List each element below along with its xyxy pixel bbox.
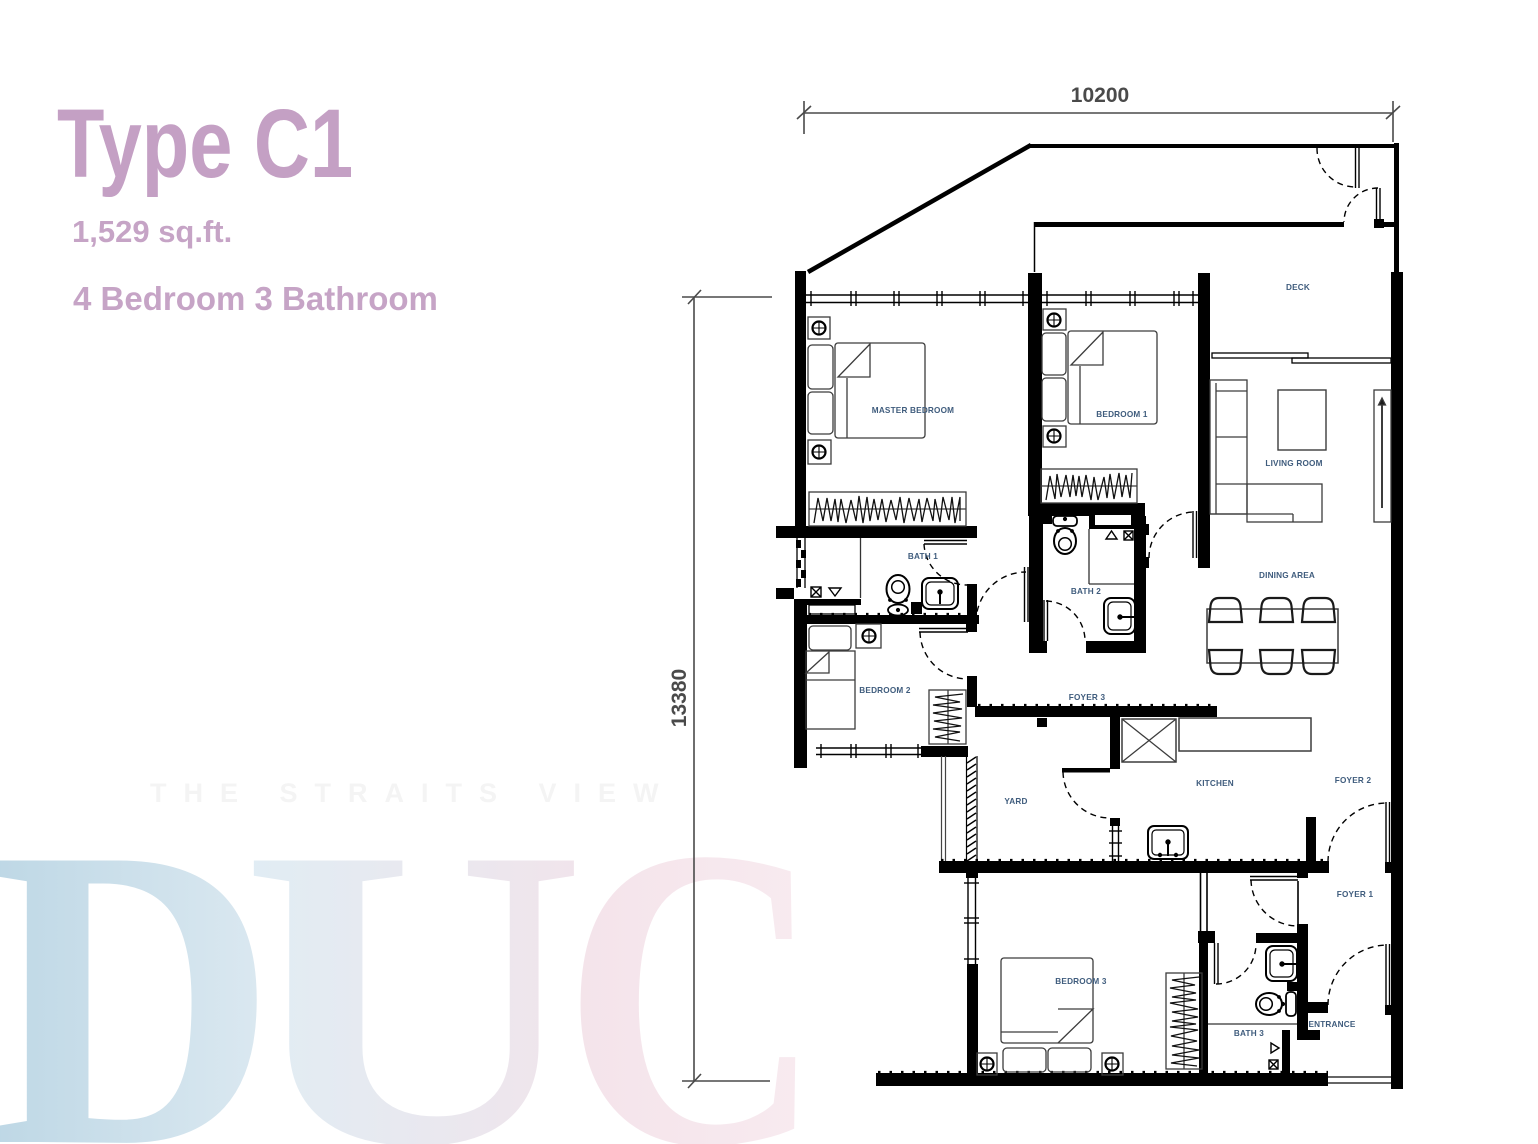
- svg-text:FOYER 1: FOYER 1: [1337, 890, 1374, 899]
- svg-text:BEDROOM 2: BEDROOM 2: [859, 686, 911, 695]
- svg-text:BATH 2: BATH 2: [1071, 587, 1101, 596]
- svg-text:FOYER 2: FOYER 2: [1335, 776, 1372, 785]
- svg-text:KITCHEN: KITCHEN: [1196, 779, 1234, 788]
- svg-text:BEDROOM 3: BEDROOM 3: [1055, 977, 1107, 986]
- svg-text:BEDROOM 1: BEDROOM 1: [1096, 410, 1148, 419]
- svg-text:13380: 13380: [668, 669, 691, 727]
- svg-text:FOYER 3: FOYER 3: [1069, 693, 1106, 702]
- svg-text:DINING AREA: DINING AREA: [1259, 571, 1315, 580]
- svg-text:MASTER BEDROOM: MASTER BEDROOM: [872, 406, 954, 415]
- svg-text:YARD: YARD: [1004, 797, 1027, 806]
- svg-text:10200: 10200: [1071, 84, 1129, 107]
- svg-text:BATH 1: BATH 1: [908, 552, 938, 561]
- svg-text:LIVING ROOM: LIVING ROOM: [1265, 459, 1322, 468]
- svg-text:BATH 3: BATH 3: [1234, 1029, 1264, 1038]
- svg-text:ENTRANCE: ENTRANCE: [1308, 1020, 1355, 1029]
- svg-text:DECK: DECK: [1286, 283, 1310, 292]
